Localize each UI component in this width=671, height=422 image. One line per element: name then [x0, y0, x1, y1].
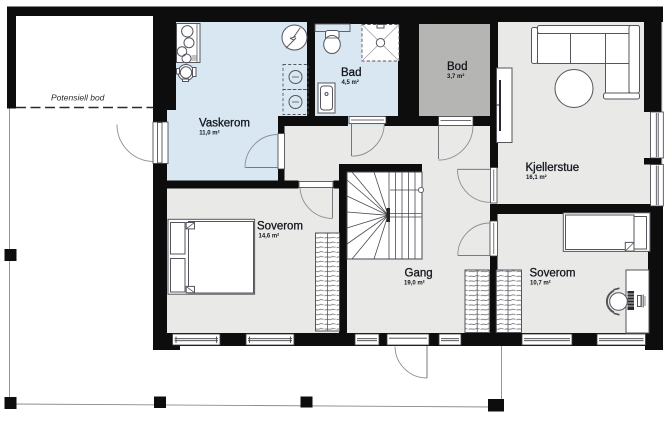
svg-text:19,0 m²: 19,0 m² — [404, 280, 425, 287]
svg-text:Kjellerstue: Kjellerstue — [526, 162, 580, 174]
svg-text:11,0 m²: 11,0 m² — [199, 130, 219, 137]
svg-text:14,6 m²: 14,6 m² — [259, 233, 280, 240]
svg-text:4,5 m²: 4,5 m² — [342, 79, 359, 86]
svg-text:Soverom: Soverom — [257, 221, 303, 233]
svg-text:Bad: Bad — [341, 67, 361, 79]
svg-text:Gang: Gang — [405, 268, 433, 280]
svg-text:16,1 m²: 16,1 m² — [526, 174, 547, 181]
svg-text:10,7 m²: 10,7 m² — [530, 280, 551, 287]
svg-text:Bod: Bod — [447, 61, 467, 73]
svg-text:3,7 m²: 3,7 m² — [447, 73, 464, 80]
svg-text:Vaskerom: Vaskerom — [199, 118, 250, 130]
svg-text:Soverom: Soverom — [530, 268, 576, 280]
svg-text:Potensiell bod: Potensiell bod — [51, 93, 105, 103]
